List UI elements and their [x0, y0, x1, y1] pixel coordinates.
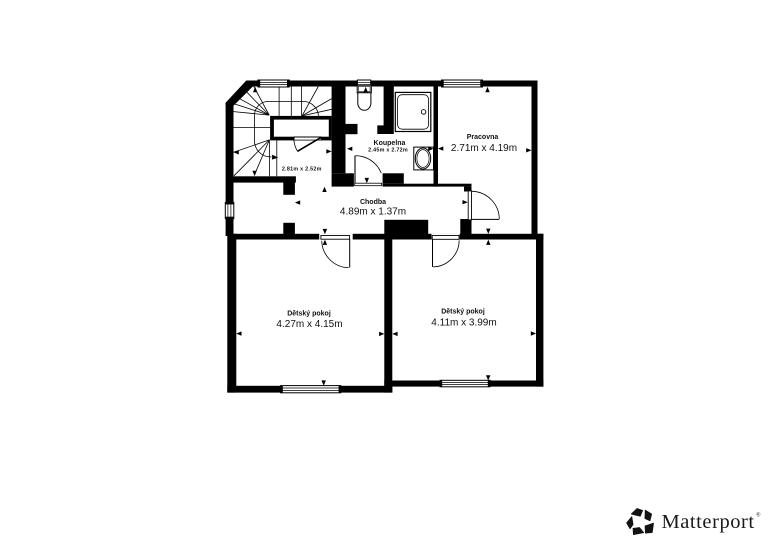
svg-text:2.81m x 2.52m: 2.81m x 2.52m [282, 166, 322, 172]
svg-text:Dětský pokoj: Dětský pokoj [287, 311, 331, 318]
svg-text:Chodba: Chodba [360, 199, 386, 206]
svg-text:4.11m x 3.99m: 4.11m x 3.99m [431, 318, 496, 329]
svg-text:Matterport: Matterport [662, 511, 755, 533]
svg-text:Pracovna: Pracovna [467, 134, 499, 141]
svg-text:Koupelna: Koupelna [374, 140, 406, 147]
svg-text:2.45m x 2.72m: 2.45m x 2.72m [368, 147, 408, 153]
svg-text:®: ® [756, 512, 761, 519]
svg-text:4.27m x 4.15m: 4.27m x 4.15m [276, 319, 342, 330]
svg-text:2.71m x 4.19m: 2.71m x 4.19m [451, 143, 517, 154]
svg-text:Dětský pokoj: Dětský pokoj [441, 308, 485, 315]
svg-text:4.89m x 1.37m: 4.89m x 1.37m [340, 207, 406, 218]
